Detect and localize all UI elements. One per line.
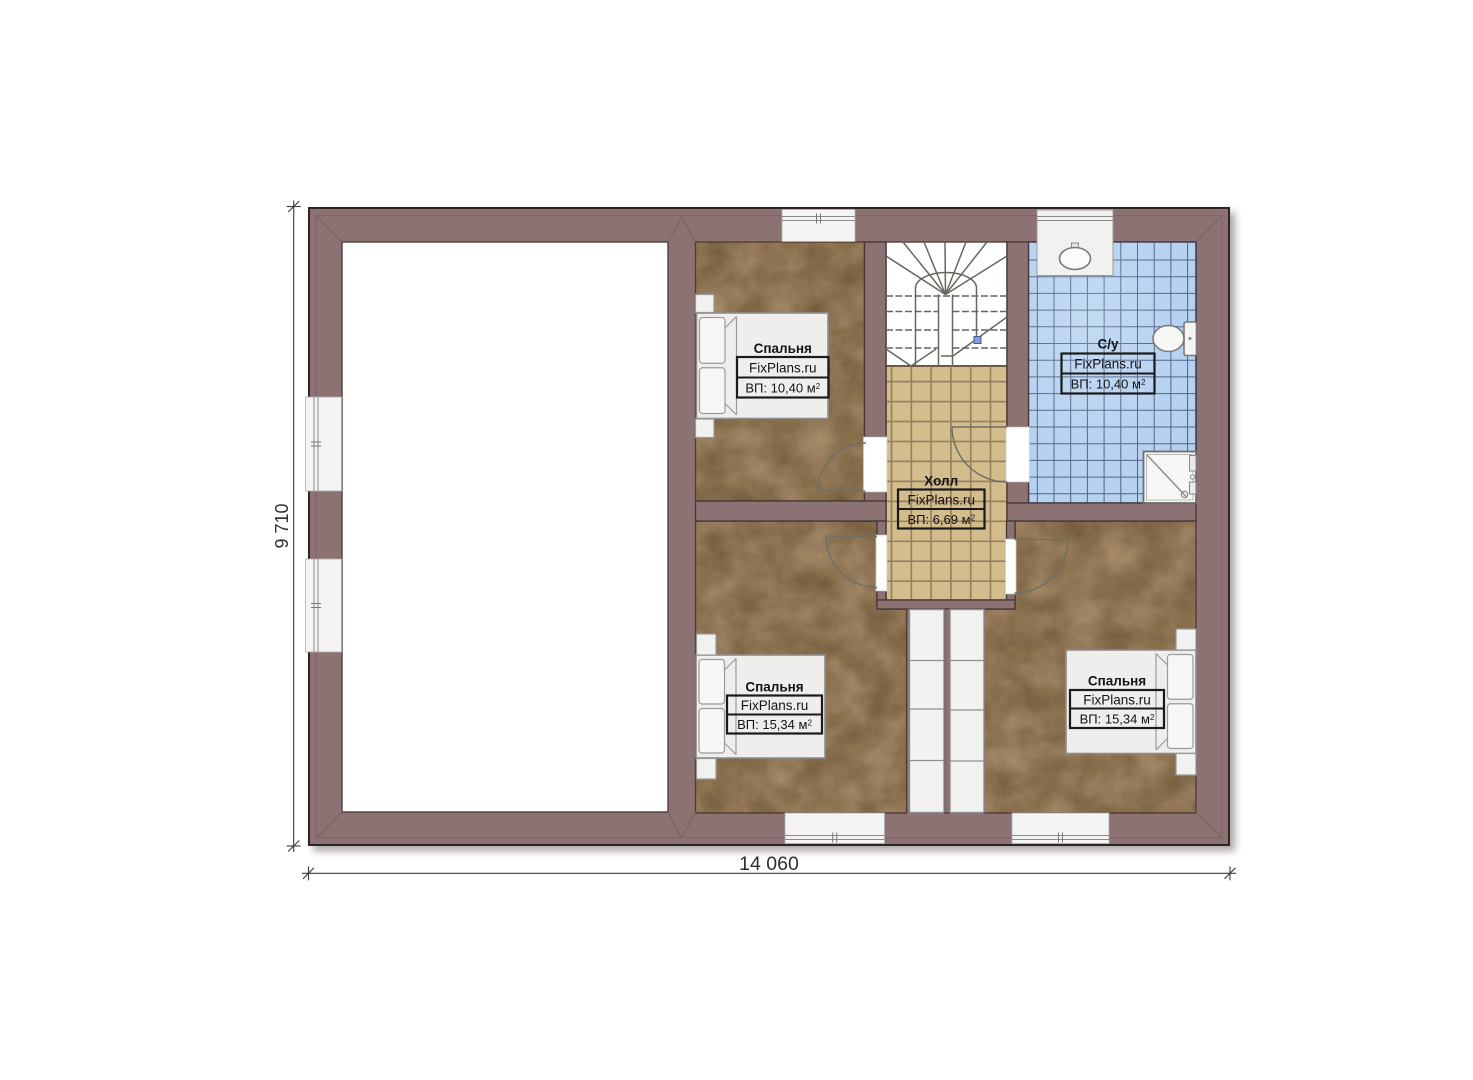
svg-text:Холл: Холл xyxy=(924,474,958,489)
svg-text:С/у: С/у xyxy=(1097,337,1119,352)
svg-text:FixPlans.ru: FixPlans.ru xyxy=(741,698,809,713)
svg-text:ВП: 10,40 м2: ВП: 10,40 м2 xyxy=(1071,377,1146,392)
svg-text:ВП: 6,69 м2: ВП: 6,69 м2 xyxy=(907,512,975,527)
svg-text:FixPlans.ru: FixPlans.ru xyxy=(1083,692,1151,707)
svg-text:14 060: 14 060 xyxy=(739,853,799,875)
svg-text:Спальня: Спальня xyxy=(754,341,812,356)
svg-text:FixPlans.ru: FixPlans.ru xyxy=(1074,357,1142,372)
svg-text:Спальня: Спальня xyxy=(745,680,803,695)
svg-text:ВП: 15,34 м2: ВП: 15,34 м2 xyxy=(737,717,812,732)
svg-text:Спальня: Спальня xyxy=(1088,674,1146,689)
svg-text:ВП: 10,40 м2: ВП: 10,40 м2 xyxy=(745,381,820,396)
svg-text:9 710: 9 710 xyxy=(272,503,292,548)
svg-text:FixPlans.ru: FixPlans.ru xyxy=(749,360,817,375)
svg-text:FixPlans.ru: FixPlans.ru xyxy=(907,492,975,507)
svg-text:ВП: 15,34 м2: ВП: 15,34 м2 xyxy=(1080,711,1155,726)
